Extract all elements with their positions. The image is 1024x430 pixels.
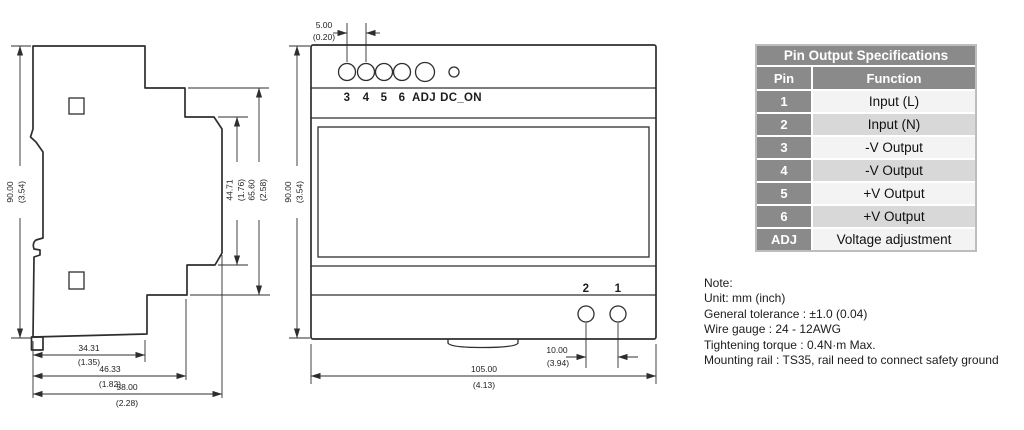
front-view-drawing: 3 4 5 6 ADJ DC_ON 2 1 5.00 (0.20) xyxy=(283,20,656,390)
svg-text:(2.58): (2.58) xyxy=(258,179,268,201)
side-profile-outline xyxy=(31,46,223,337)
note-line-wire-gauge: Wire gauge : 24 - 12AWG xyxy=(704,322,999,337)
dim-34-31: 34.31 (1.35) xyxy=(33,343,145,367)
svg-text:65.60: 65.60 xyxy=(247,179,257,201)
terminal-label-adj: ADJ xyxy=(412,92,436,104)
output-terminal-6 xyxy=(394,64,411,81)
svg-text:(3.54): (3.54) xyxy=(295,181,305,203)
terminal-label-4: 4 xyxy=(363,92,370,104)
svg-text:90.00: 90.00 xyxy=(283,181,293,203)
mechanical-drawing: 90.00 (3.54) 44.71 (1.76) 65.60 (2.58) 3… xyxy=(0,0,700,430)
adj-potentiometer xyxy=(416,63,435,82)
pin-cell-2: 2 xyxy=(757,114,811,135)
input-terminal-2 xyxy=(578,306,594,322)
function-cell-5: +V Output xyxy=(813,183,975,204)
note-line-title: Note: xyxy=(704,276,999,291)
mount-hole-lower xyxy=(69,272,84,289)
svg-text:5.00: 5.00 xyxy=(316,20,333,30)
dim-input-pitch-10: 10.00 (3.94) xyxy=(546,323,638,368)
pin-spec-table: Pin Output Specifications Pin Function 1… xyxy=(755,44,977,252)
mount-hole-upper xyxy=(69,98,84,114)
pin-cell-1: 1 xyxy=(757,91,811,112)
pin-cell-adj: ADJ xyxy=(757,229,811,250)
function-cell-1: Input (L) xyxy=(813,91,975,112)
dc-on-led xyxy=(449,67,459,77)
dim-height-90: 90.00 (3.54) xyxy=(5,46,31,338)
function-cell-adj: Voltage adjustment xyxy=(813,229,975,250)
terminal-label-dc-on: DC_ON xyxy=(440,92,482,104)
dim-58-00: 58.00 (2.28) xyxy=(33,382,222,408)
terminal-label-5: 5 xyxy=(381,92,388,104)
pin-cell-6: 6 xyxy=(757,206,811,227)
svg-text:34.31: 34.31 xyxy=(78,343,100,353)
note-line-unit: Unit: mm (inch) xyxy=(704,291,999,306)
svg-text:(0.20): (0.20) xyxy=(313,32,335,42)
svg-text:46.33: 46.33 xyxy=(99,364,121,374)
dim-height-90-front: 90.00 (3.54) xyxy=(283,46,310,338)
table-title: Pin Output Specifications xyxy=(757,46,975,65)
output-terminal-3 xyxy=(339,64,356,81)
terminal-label-1: 1 xyxy=(615,283,622,295)
notes-block: Note: Unit: mm (inch) General tolerance … xyxy=(704,276,999,368)
svg-text:90.00: 90.00 xyxy=(5,181,15,203)
din-rail-tab xyxy=(448,339,518,348)
terminal-label-3: 3 xyxy=(344,92,351,104)
svg-text:44.71: 44.71 xyxy=(225,179,235,201)
input-terminal-1 xyxy=(610,306,626,322)
function-cell-3: -V Output xyxy=(813,137,975,158)
function-cell-4: -V Output xyxy=(813,160,975,181)
svg-text:10.00: 10.00 xyxy=(546,345,568,355)
pin-cell-3: 3 xyxy=(757,137,811,158)
svg-text:(1.35): (1.35) xyxy=(78,357,100,367)
dim-44-71: 44.71 (1.76) xyxy=(225,117,250,265)
note-line-torque: Tightening torque : 0.4N·m Max. xyxy=(704,338,999,353)
datasheet-page: 90.00 (3.54) 44.71 (1.76) 65.60 (2.58) 3… xyxy=(0,0,1024,430)
terminal-label-2: 2 xyxy=(583,283,590,295)
note-line-mounting-rail: Mounting rail : TS35, rail need to conne… xyxy=(704,353,999,368)
svg-text:(4.13): (4.13) xyxy=(473,380,495,390)
dim-width-105: 105.00 (4.13) xyxy=(311,344,656,390)
svg-text:(3.54): (3.54) xyxy=(17,181,27,203)
function-cell-2: Input (N) xyxy=(813,114,975,135)
pin-cell-4: 4 xyxy=(757,160,811,181)
column-header-pin: Pin xyxy=(757,67,811,89)
function-cell-6: +V Output xyxy=(813,206,975,227)
output-terminal-5 xyxy=(376,64,393,81)
dim-65-60: 65.60 (2.58) xyxy=(247,88,273,295)
dim-pitch-5: 5.00 (0.20) xyxy=(313,20,380,62)
side-view-drawing: 90.00 (3.54) 44.71 (1.76) 65.60 (2.58) 3… xyxy=(5,46,272,408)
note-line-tolerance: General tolerance : ±1.0 (0.04) xyxy=(704,307,999,322)
svg-text:58.00: 58.00 xyxy=(116,382,138,392)
svg-text:(1.76): (1.76) xyxy=(236,179,246,201)
svg-text:105.00: 105.00 xyxy=(471,364,497,374)
dim-46-33: 46.33 (1.82) xyxy=(33,364,186,389)
terminal-label-6: 6 xyxy=(399,92,406,104)
svg-text:(3.94): (3.94) xyxy=(547,358,569,368)
pin-cell-5: 5 xyxy=(757,183,811,204)
output-terminal-4 xyxy=(358,64,375,81)
column-header-function: Function xyxy=(813,67,975,89)
svg-text:(2.28): (2.28) xyxy=(116,398,138,408)
label-window xyxy=(318,127,649,257)
